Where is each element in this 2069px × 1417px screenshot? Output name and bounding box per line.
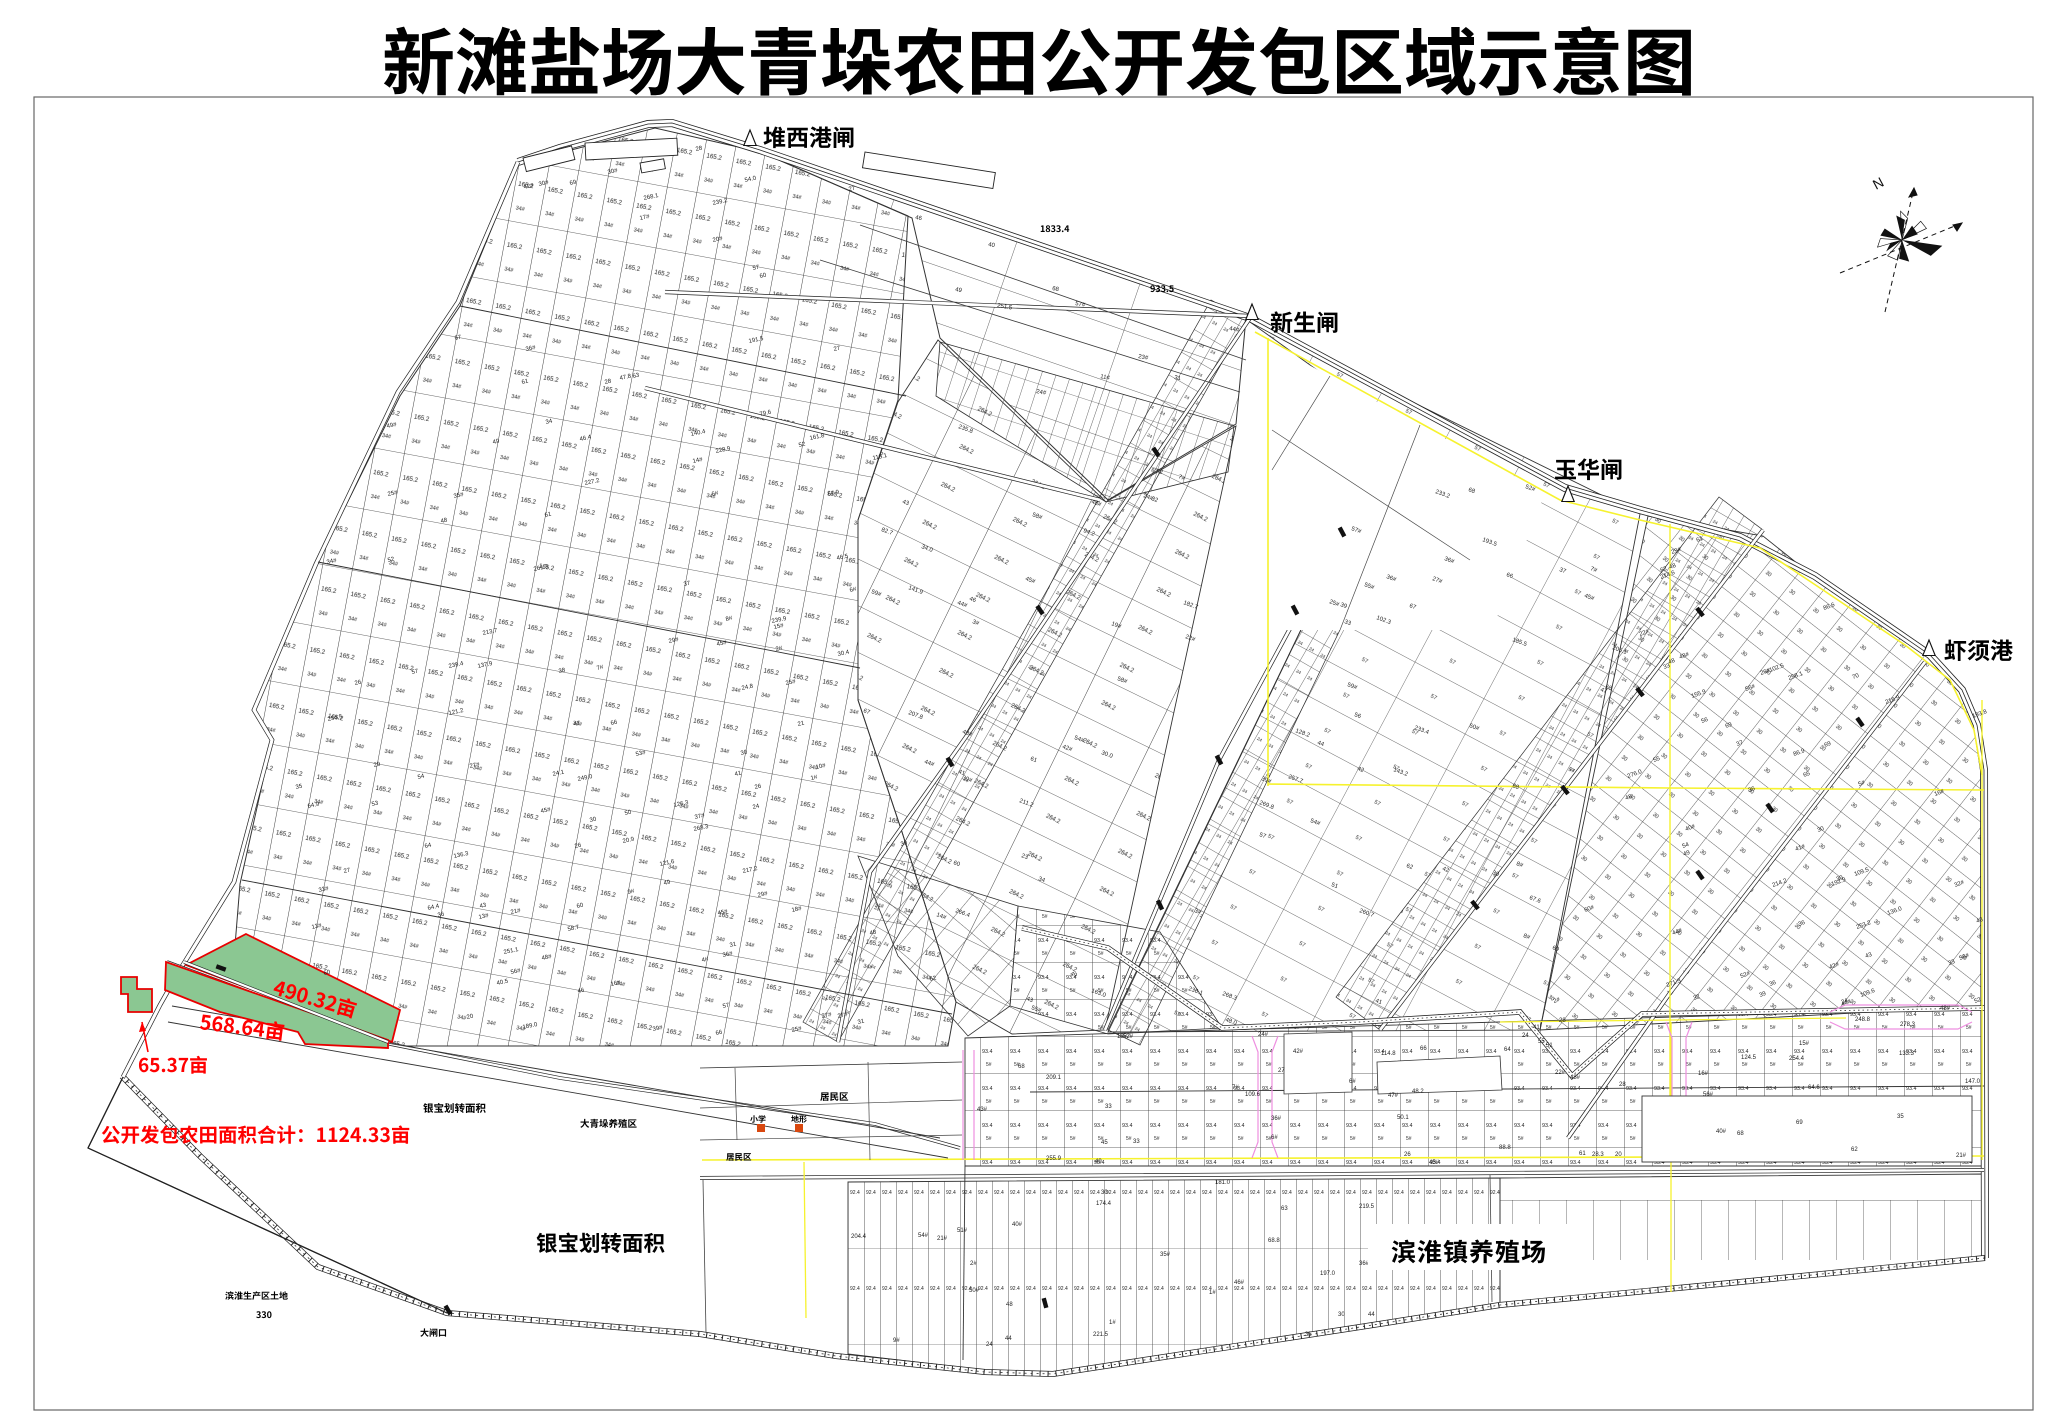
svg-text:2#: 2# [970,1261,977,1267]
svg-text:44: 44 [1368,1312,1375,1318]
svg-text:48: 48 [1006,1302,1013,1308]
svg-text:41: 41 [1533,1025,1540,1031]
svg-text:35#: 35# [1160,1252,1171,1258]
svg-text:56#: 56# [1703,1092,1714,1098]
svg-text:28: 28 [1559,1018,1566,1024]
svg-text:30: 30 [1101,1190,1108,1196]
svg-text:35: 35 [1305,1332,1312,1338]
svg-text:204.4: 204.4 [851,1234,867,1240]
svg-text:147.0: 147.0 [1965,1079,1981,1085]
svg-text:40#: 40# [1012,1222,1023,1228]
svg-text:28.3: 28.3 [1592,1152,1604,1158]
svg-text:1#: 1# [1209,1290,1216,1296]
svg-text:6#: 6# [1349,1079,1356,1085]
svg-text:45#: 45# [1429,1160,1440,1166]
svg-text:50#: 50# [969,1288,980,1294]
svg-text:21#: 21# [937,1236,948,1242]
svg-text:45: 45 [1101,1140,1108,1146]
svg-text:54#: 54# [918,1233,929,1239]
svg-text:24: 24 [1522,1033,1529,1039]
svg-text:24#: 24# [1258,1032,1269,1038]
svg-text:255.9: 255.9 [1046,1156,1062,1162]
svg-text:248.8: 248.8 [1855,1017,1871,1023]
svg-text:68.8: 68.8 [1268,1238,1280,1244]
svg-text:48#: 48# [1570,1075,1581,1081]
svg-text:21#: 21# [1956,1153,1967,1159]
svg-text:9#: 9# [893,1338,900,1344]
svg-text:51#: 51# [957,1228,968,1234]
svg-text:43#: 43# [977,1107,988,1113]
svg-text:133.3: 133.3 [1899,1051,1915,1057]
svg-text:18#: 18# [1117,1034,1128,1040]
svg-text:47#: 47# [1388,1093,1399,1099]
svg-text:197.0: 197.0 [1320,1271,1336,1277]
svg-text:42#: 42# [1293,1049,1304,1055]
svg-text:66: 66 [1420,1046,1427,1052]
svg-text:48.2: 48.2 [1412,1089,1424,1095]
svg-text:30: 30 [1338,1312,1345,1318]
svg-text:109.6: 109.6 [1245,1092,1261,1098]
svg-text:254.4: 254.4 [1789,1056,1805,1062]
svg-text:48#: 48# [1940,1006,1951,1012]
svg-text:16#: 16# [1698,1071,1709,1077]
svg-text:278.3: 278.3 [1900,1022,1916,1028]
svg-text:7#: 7# [1232,1085,1239,1091]
svg-text:20: 20 [1615,1152,1622,1158]
svg-text:221.5: 221.5 [1093,1332,1109,1338]
svg-text:40#: 40# [1716,1129,1727,1135]
svg-text:49: 49 [1095,1159,1102,1165]
svg-text:33: 33 [1105,1104,1112,1110]
svg-text:88.8: 88.8 [1499,1145,1511,1151]
svg-text:44: 44 [1005,1336,1012,1342]
svg-text:174.4: 174.4 [1096,1201,1112,1207]
svg-text:219.5: 219.5 [1359,1204,1375,1210]
svg-text:62: 62 [1851,1147,1858,1153]
svg-text:64.6: 64.6 [1808,1085,1820,1091]
svg-text:1#: 1# [1109,1320,1116,1326]
svg-text:64: 64 [1504,1047,1511,1053]
svg-text:24: 24 [986,1342,993,1348]
svg-text:46#: 46# [1234,1280,1245,1286]
svg-text:33: 33 [1133,1139,1140,1145]
svg-text:26: 26 [1404,1152,1411,1158]
svg-text:124.5: 124.5 [1741,1055,1757,1061]
svg-text:15#: 15# [1799,1041,1810,1047]
svg-text:51: 51 [1546,1043,1553,1049]
svg-text:36#: 36# [1271,1116,1282,1122]
svg-text:6#: 6# [1271,1135,1278,1141]
svg-text:61: 61 [1579,1151,1586,1157]
svg-text:27: 27 [1278,1068,1285,1074]
svg-text:50.1: 50.1 [1397,1115,1409,1121]
svg-text:69: 69 [1796,1120,1803,1126]
svg-text:68: 68 [1737,1131,1744,1137]
svg-text:22#: 22# [1555,1070,1566,1076]
svg-text:114.8: 114.8 [1381,1051,1396,1057]
svg-text:209.1: 209.1 [1046,1075,1062,1081]
svg-text:35: 35 [1897,1114,1904,1120]
svg-text:63: 63 [1281,1206,1288,1212]
svg-text:68: 68 [1018,1064,1025,1070]
svg-text:28: 28 [1619,1082,1626,1088]
svg-text:55: 55 [1538,1039,1545,1045]
svg-text:181.0: 181.0 [1215,1180,1231,1186]
